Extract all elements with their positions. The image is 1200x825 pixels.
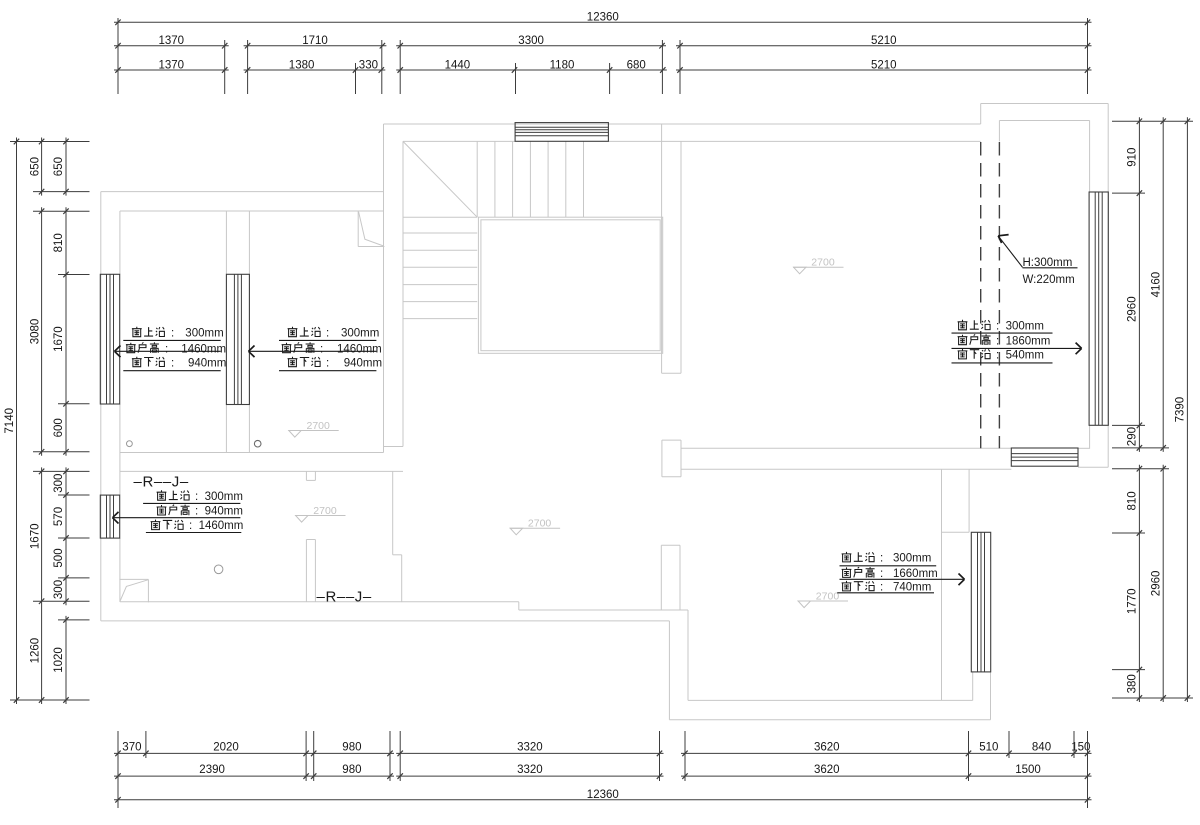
svg-text::: : [996, 320, 999, 332]
svg-text:2700: 2700 [811, 257, 835, 269]
svg-text:1460mm: 1460mm [337, 343, 382, 355]
svg-text:940mm: 940mm [188, 357, 226, 369]
svg-text:1370: 1370 [159, 35, 185, 47]
svg-text:1660mm: 1660mm [893, 568, 938, 580]
svg-text:1500: 1500 [1015, 764, 1041, 776]
svg-text::: : [880, 568, 883, 580]
svg-text:680: 680 [627, 59, 646, 71]
svg-text:1860mm: 1860mm [1006, 335, 1051, 347]
svg-text:1380: 1380 [289, 59, 315, 71]
svg-text:510: 510 [979, 741, 998, 753]
svg-text:1770: 1770 [1127, 589, 1139, 615]
svg-text:380: 380 [1127, 674, 1139, 693]
svg-text::: : [326, 327, 329, 339]
svg-text:7140: 7140 [4, 408, 16, 434]
svg-text:7390: 7390 [1175, 397, 1187, 423]
svg-text:4160: 4160 [1151, 272, 1163, 298]
svg-text::: : [996, 350, 999, 362]
svg-text:2700: 2700 [528, 518, 552, 530]
svg-text:3080: 3080 [29, 319, 41, 345]
svg-text:810: 810 [1127, 491, 1139, 510]
svg-text:300mm: 300mm [893, 553, 931, 565]
svg-text:330: 330 [359, 59, 378, 71]
svg-text:1440: 1440 [445, 59, 471, 71]
svg-text:600: 600 [53, 418, 65, 437]
svg-text:3620: 3620 [814, 741, 840, 753]
svg-text:12360: 12360 [587, 789, 619, 801]
svg-text:2020: 2020 [213, 741, 239, 753]
svg-text:–R––J–: –R––J– [317, 589, 372, 606]
svg-text:1670: 1670 [29, 524, 41, 550]
svg-text:910: 910 [1127, 148, 1139, 167]
svg-text:980: 980 [342, 764, 361, 776]
svg-text::: : [171, 357, 174, 369]
svg-text:1460mm: 1460mm [199, 520, 244, 532]
svg-text::: : [996, 335, 999, 347]
svg-text::: : [320, 343, 323, 355]
svg-text:300mm: 300mm [185, 327, 223, 339]
svg-text:5210: 5210 [871, 59, 897, 71]
svg-text:2700: 2700 [313, 505, 337, 517]
svg-text:3320: 3320 [517, 741, 543, 753]
svg-text:650: 650 [29, 157, 41, 176]
svg-text:1260: 1260 [29, 638, 41, 664]
svg-text:300mm: 300mm [1006, 320, 1044, 332]
svg-text:370: 370 [122, 741, 141, 753]
svg-text::: : [880, 553, 883, 565]
svg-text:2390: 2390 [199, 764, 225, 776]
svg-text:1710: 1710 [302, 35, 328, 47]
svg-text::: : [165, 343, 168, 355]
svg-text:1460mm: 1460mm [181, 343, 226, 355]
svg-text:940mm: 940mm [205, 506, 243, 518]
svg-text:1370: 1370 [159, 59, 185, 71]
svg-text:300mm: 300mm [341, 327, 379, 339]
svg-text:2700: 2700 [816, 590, 840, 602]
svg-text:570: 570 [53, 507, 65, 526]
svg-text:1020: 1020 [53, 647, 65, 673]
svg-text::: : [171, 327, 174, 339]
svg-text:3300: 3300 [518, 35, 544, 47]
svg-text:5210: 5210 [871, 35, 897, 47]
svg-text::: : [189, 520, 192, 532]
svg-text:540mm: 540mm [1006, 350, 1044, 362]
svg-text:H:300mm: H:300mm [1023, 257, 1073, 269]
svg-text:2700: 2700 [307, 420, 331, 432]
svg-text:3320: 3320 [517, 764, 543, 776]
svg-text:300: 300 [53, 474, 65, 493]
svg-text:3620: 3620 [814, 764, 840, 776]
svg-text::: : [195, 491, 198, 503]
svg-text:980: 980 [342, 741, 361, 753]
svg-text:300mm: 300mm [205, 491, 243, 503]
svg-text:300: 300 [53, 580, 65, 599]
svg-text:740mm: 740mm [893, 582, 931, 594]
svg-text::: : [195, 506, 198, 518]
svg-text::: : [880, 582, 883, 594]
svg-text:2960: 2960 [1151, 571, 1163, 597]
svg-text:1670: 1670 [53, 326, 65, 352]
svg-text:940mm: 940mm [344, 357, 382, 369]
svg-text:12360: 12360 [587, 11, 619, 23]
svg-text:810: 810 [53, 233, 65, 252]
svg-text:650: 650 [53, 157, 65, 176]
svg-text:W:220mm: W:220mm [1023, 274, 1075, 286]
svg-text:1180: 1180 [550, 59, 575, 71]
svg-text:840: 840 [1032, 741, 1051, 753]
svg-text:–R––J–: –R––J– [134, 474, 189, 491]
svg-text::: : [326, 357, 329, 369]
svg-text:2960: 2960 [1127, 296, 1139, 322]
svg-text:500: 500 [53, 548, 65, 567]
svg-text:290: 290 [1127, 427, 1139, 446]
